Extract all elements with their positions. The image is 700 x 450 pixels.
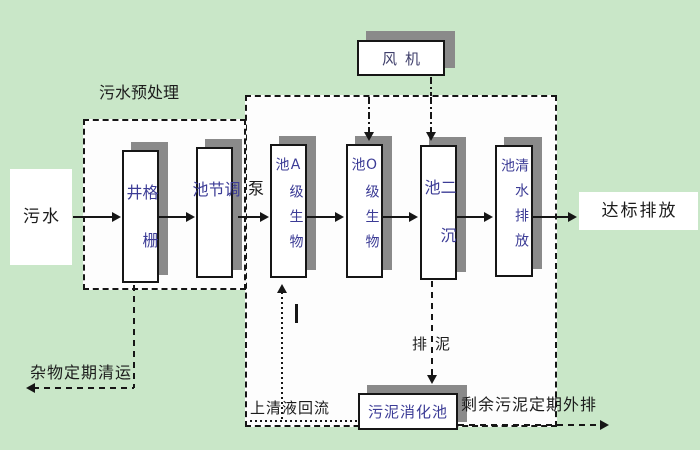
sludge-discharge-label: 排泥 — [412, 336, 458, 353]
effluent-label: 达标排放 — [602, 202, 678, 221]
grid-well-label: 格栅井 — [125, 184, 157, 281]
tick-mark — [295, 304, 298, 323]
fan-air-line-clarifier — [430, 97, 432, 133]
debris-removal-arrowhead — [26, 383, 35, 393]
a-bio-tank-label: A级生物池 — [275, 157, 303, 276]
grid-well-box: 格栅井 — [122, 150, 159, 283]
debris-removal-label: 杂物定期清运 — [30, 364, 132, 382]
fan-stem-line — [430, 77, 432, 96]
flow-line-clean-water-to-effluent — [532, 216, 568, 218]
regulating-tank-label: 调节池 — [191, 181, 239, 276]
debris-removal-line-horizontal — [33, 387, 134, 389]
sludge-digestion-tank-label: 污泥消化池 — [368, 401, 448, 422]
a-bio-tank-box: A级生物池 — [270, 144, 307, 278]
clean-water-tank-label: 清水排放池 — [500, 158, 528, 275]
flow-arrowhead — [568, 212, 577, 222]
wastewater-treatment-flow-diagram: 污水 达标排放 风机 格栅井 调节池 A级生物池 O级生物池 二沉池 清水排放池… — [0, 0, 700, 450]
debris-removal-line-vertical — [133, 285, 135, 388]
flow-arrowhead — [335, 212, 344, 222]
regulating-tank-box: 调节池 — [196, 147, 233, 278]
supernatant-return-label: 上清液回流 — [250, 400, 330, 417]
excess-sludge-arrowhead — [600, 420, 609, 430]
flow-arrowhead — [484, 212, 493, 222]
flow-arrowhead — [260, 212, 269, 222]
excess-sludge-label: 剩余污泥定期外排 — [461, 396, 597, 414]
sludge-discharge-arrowhead — [427, 375, 437, 384]
secondary-clarifier-label: 二沉池 — [423, 179, 455, 278]
flow-line-o-to-clarifier — [383, 216, 409, 218]
flow-line-clarifier-to-clean-water — [457, 216, 484, 218]
supernatant-return-arrowhead — [277, 284, 287, 293]
sludge-discharge-line — [431, 281, 433, 375]
flow-line-a-to-o-tank — [307, 216, 335, 218]
influent-label: 污水 — [23, 208, 61, 227]
flow-arrowhead — [409, 212, 418, 222]
secondary-clarifier-box: 二沉池 — [420, 145, 457, 280]
supernatant-return-line-horizontal — [250, 420, 358, 422]
pump-label: 泵 — [248, 180, 264, 198]
sludge-digestion-tank-box: 污泥消化池 — [358, 393, 458, 430]
flow-line-grid-well-to-regulating — [158, 216, 186, 218]
flow-arrowhead — [112, 212, 121, 222]
influent-box: 污水 — [10, 169, 72, 265]
fan-air-line-o-tank — [368, 97, 370, 133]
excess-sludge-line — [458, 424, 600, 426]
fan-box: 风机 — [357, 40, 445, 76]
clean-water-tank-box: 清水排放池 — [495, 145, 533, 277]
fan-air-arrowhead-clarifier — [426, 132, 436, 141]
flow-line-regulating-to-a-tank — [238, 216, 260, 218]
fan-air-arrowhead-o-tank — [364, 132, 374, 141]
fan-label: 风机 — [382, 48, 428, 69]
pretreatment-group-label: 污水预处理 — [99, 84, 179, 102]
o-bio-tank-box: O级生物池 — [346, 144, 383, 278]
o-bio-tank-label: O级生物池 — [351, 157, 379, 276]
flow-line-influent-to-grid-well — [73, 216, 112, 218]
effluent-box: 达标排放 — [579, 192, 698, 230]
